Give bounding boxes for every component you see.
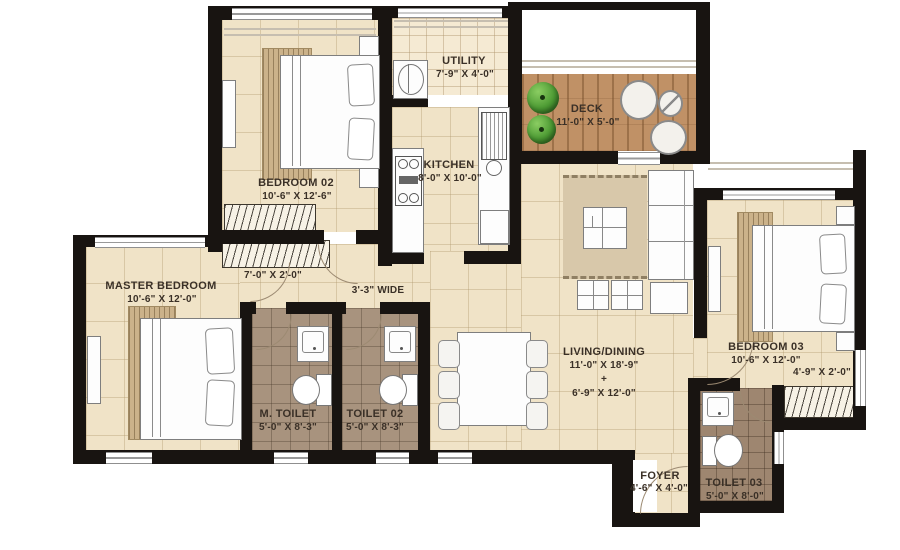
dining-chair: [438, 371, 460, 399]
window: [232, 8, 372, 20]
m-toilet-label: M. TOILET: [260, 408, 317, 420]
bedroom02-dims: 10'-6" X 12'-6": [262, 191, 332, 202]
bedroom03-label: BEDROOM 03: [728, 341, 804, 353]
window: [855, 350, 866, 406]
pillow: [819, 233, 847, 274]
master-wardrobe-dims: 7'-0" X 2'-0": [244, 270, 302, 281]
toilet03-dims: 5'-0" X 8'-0": [706, 491, 764, 502]
kitchen-dims: 8'-0" X 10'-0": [418, 173, 482, 184]
m-toilet-dims: 5'-0" X 8'-3": [259, 422, 317, 433]
wall: [73, 450, 635, 464]
window: [774, 432, 784, 464]
bedroom02-label: BEDROOM 02: [258, 177, 334, 189]
wall: [418, 302, 430, 450]
bed-line: [292, 56, 293, 166]
dining-chair: [438, 402, 460, 430]
master-bedroom-label: MASTER BEDROOM: [105, 280, 216, 292]
bedroom03-dims: 10'-6" X 12'-0": [731, 355, 801, 366]
pillow: [205, 379, 235, 426]
dining-chair: [526, 371, 548, 399]
pillow: [205, 327, 235, 374]
bedroom03-doorway-floor: [693, 338, 707, 383]
pillow: [347, 63, 375, 106]
wall: [356, 230, 378, 244]
wall: [240, 302, 256, 314]
deck-label: DECK: [571, 103, 603, 115]
bedside-table: [359, 36, 379, 56]
toilet-wc-bowl: [379, 375, 407, 405]
bedside-table: [836, 332, 855, 351]
wall: [508, 151, 618, 164]
plant: [527, 115, 556, 144]
sink-basin: [486, 160, 502, 176]
toilet02-dims: 5'-0" X 8'-3": [346, 422, 404, 433]
washing-machine: [393, 60, 428, 99]
window-sill-line: [394, 26, 508, 28]
utility-label: UTILITY: [442, 55, 486, 67]
dining-chair: [526, 340, 548, 368]
window: [376, 452, 409, 464]
wall: [508, 2, 710, 10]
utility-dims: 7'-9" X 4'-0": [436, 69, 494, 80]
deck-railing-line: [522, 66, 696, 68]
wall: [73, 235, 86, 464]
bedside-table: [836, 206, 855, 225]
window-sill-line: [224, 34, 376, 36]
master-bedroom-dims: 10'-6" X 12'-0": [127, 294, 197, 305]
bed-line: [300, 56, 301, 166]
living-dining-plus: +: [601, 374, 607, 385]
deck-railing-line: [522, 60, 696, 62]
deck-chair: [650, 120, 687, 155]
passage-width-label: 3'-3" WIDE: [352, 285, 404, 296]
toilet-wc-bowl: [714, 434, 743, 467]
toilet-wc-bowl: [292, 375, 320, 405]
wall: [208, 6, 222, 252]
dining-chair: [526, 402, 548, 430]
bed-line: [772, 226, 773, 329]
toilet03-label: TOILET 03: [706, 477, 763, 489]
washbasin: [384, 326, 416, 362]
dresser: [87, 336, 101, 404]
wall: [630, 513, 700, 527]
window: [274, 452, 308, 464]
wall: [694, 188, 707, 338]
window: [723, 190, 835, 200]
wall: [508, 2, 522, 164]
living-dining-dims2: 6'-9" X 12'-0": [572, 388, 636, 399]
living-dining-label: LIVING/DINING: [563, 346, 645, 358]
bedside-table: [359, 168, 379, 188]
eave-line: [708, 162, 853, 164]
pillow: [347, 117, 375, 160]
toilet02-label: TOILET 02: [347, 408, 404, 420]
sliding-door: [618, 152, 660, 165]
bedroom03-wardrobe-dims: 4'-9" X 2'-0": [793, 367, 851, 378]
wall: [688, 378, 700, 513]
living-dining-dims: 11'-0" X 18'-9": [570, 360, 639, 371]
coffee-table: [583, 207, 627, 249]
bedroom03-wardrobe: [784, 386, 855, 418]
window-sill-line: [224, 28, 376, 30]
kitchen-label: KITCHEN: [424, 159, 475, 171]
wall: [688, 501, 784, 513]
floorplan: BEDROOM 02 10'-6" X 12'-6" UTILITY 7'-9"…: [0, 0, 900, 550]
wall: [696, 2, 710, 164]
eave-line: [708, 168, 853, 170]
wall: [772, 418, 866, 430]
wall: [378, 6, 392, 266]
ottoman: [611, 280, 643, 310]
window: [106, 452, 152, 464]
dresser: [708, 246, 721, 312]
dining-chair: [438, 340, 460, 368]
foyer-label: FOYER: [640, 470, 679, 482]
wall: [208, 230, 324, 244]
bed-line: [160, 319, 161, 437]
deck-chair: [620, 80, 658, 120]
dresser: [222, 80, 236, 148]
window: [438, 452, 472, 464]
deck-dims: 11'-0" X 5'-0": [556, 117, 619, 128]
wall: [332, 302, 342, 450]
dining-table: [457, 332, 531, 426]
kitchen-sink: [481, 112, 507, 160]
window: [398, 8, 502, 18]
bed-line: [152, 319, 153, 437]
foyer-dims: 4'-6" X 4'-0": [630, 483, 688, 494]
washbasin: [702, 392, 734, 426]
counter-appliance: [480, 210, 509, 244]
side-table: [650, 282, 688, 314]
washbasin: [297, 326, 329, 362]
plant: [527, 82, 559, 114]
window-sill-line: [394, 20, 508, 22]
deck-table: [658, 90, 683, 117]
ottoman: [577, 280, 609, 310]
bedroom02-wardrobe: [224, 204, 316, 232]
wall: [464, 251, 521, 264]
pillow: [819, 283, 847, 324]
window: [95, 237, 205, 248]
bed-line: [764, 226, 765, 329]
sofa: [648, 170, 694, 280]
